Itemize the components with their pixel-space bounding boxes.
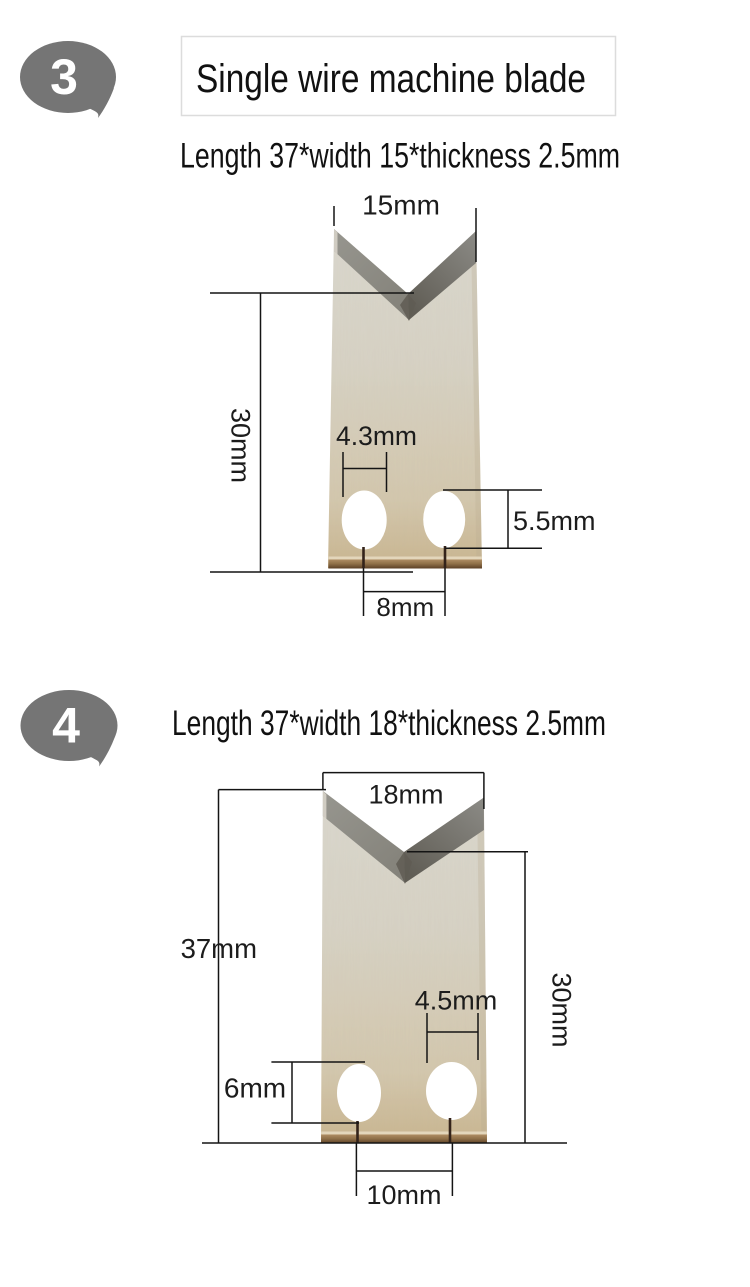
svg-text:6mm: 6mm — [224, 1073, 286, 1104]
svg-text:10mm: 10mm — [366, 1180, 441, 1210]
svg-text:Single wire machine blade: Single wire machine blade — [196, 57, 586, 101]
svg-text:Length 37*width 18*thickness 2: Length 37*width 18*thickness 2.5mm — [172, 704, 606, 743]
svg-text:18mm: 18mm — [368, 780, 443, 810]
svg-text:5.5mm: 5.5mm — [513, 506, 596, 536]
svg-text:30mm: 30mm — [226, 408, 256, 483]
svg-text:4: 4 — [52, 698, 80, 754]
svg-text:4.3mm: 4.3mm — [336, 421, 417, 451]
svg-text:30mm: 30mm — [547, 972, 577, 1047]
svg-text:Length 37*width 15*thickness 2: Length 37*width 15*thickness 2.5mm — [180, 137, 620, 176]
svg-text:15mm: 15mm — [362, 190, 440, 221]
svg-text:37mm: 37mm — [181, 933, 257, 964]
svg-text:4.5mm: 4.5mm — [415, 986, 498, 1016]
svg-text:8mm: 8mm — [376, 592, 434, 622]
svg-text:3: 3 — [50, 49, 78, 105]
